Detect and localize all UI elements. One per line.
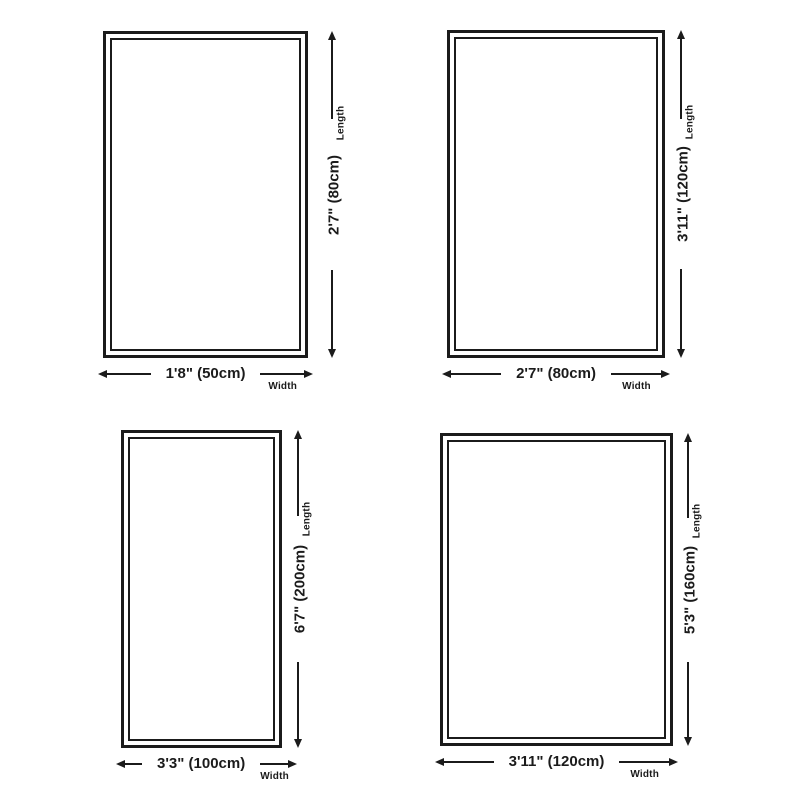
arrow-down-icon [680, 269, 682, 350]
length-dimension-value: 6'7" (200cm) [292, 545, 309, 633]
rug-diagram-120x160: Length 5'3" (160cm) 3'11" (120cm) Width [440, 433, 725, 793]
rug-size-chart: Length 2'7" (80cm) 1'8" (50cm) Width Len… [0, 0, 800, 800]
arrow-right-icon [260, 763, 289, 765]
width-dimension-line: 2'7" (80cm) Width [450, 362, 662, 392]
arrow-up-icon [297, 438, 299, 516]
rug-inner-outline [447, 440, 666, 739]
rug-outline [121, 430, 282, 748]
length-axis-label: Length [336, 105, 347, 140]
length-axis-label: Length [692, 503, 703, 538]
arrow-down-icon [687, 662, 689, 739]
arrow-left-icon [450, 373, 501, 375]
width-dimension-line: 3'3" (100cm) Width [124, 752, 279, 782]
length-axis-label: Length [302, 502, 313, 537]
length-dimension-value: 3'11" (120cm) [675, 146, 692, 242]
rug-outline [440, 433, 673, 746]
arrow-up-icon [680, 38, 682, 119]
rug-diagram-50x80: Length 2'7" (80cm) 1'8" (50cm) Width [103, 31, 368, 406]
rug-diagram-80x120: Length 3'11" (120cm) 2'7" (80cm) Width [447, 30, 717, 405]
arrow-left-icon [124, 763, 142, 765]
width-dimension-value: 1'8" (50cm) [151, 362, 261, 386]
width-dimension-value: 3'11" (120cm) [494, 750, 620, 774]
length-axis-label: Length [685, 105, 696, 140]
length-dimension-value: 2'7" (80cm) [326, 155, 343, 235]
width-dimension-line: 3'11" (120cm) Width [443, 750, 670, 780]
width-axis-label: Width [260, 771, 289, 782]
arrow-up-icon [331, 39, 333, 119]
width-axis-label: Width [630, 769, 659, 780]
rug-diagram-100x200: Length 6'7" (200cm) 3'3" (100cm) Width [121, 430, 336, 795]
width-dimension-line: 1'8" (50cm) Width [106, 362, 305, 392]
rug-outline [103, 31, 308, 358]
rug-inner-outline [110, 38, 301, 351]
arrow-down-icon [297, 662, 299, 740]
rug-inner-outline [128, 437, 275, 741]
arrow-left-icon [106, 373, 151, 375]
width-dimension-value: 3'3" (100cm) [142, 752, 260, 776]
width-dimension-value: 2'7" (80cm) [501, 362, 611, 386]
arrow-right-icon [260, 373, 305, 375]
arrow-down-icon [331, 270, 333, 350]
arrow-right-icon [611, 373, 662, 375]
arrow-left-icon [443, 761, 494, 763]
rug-inner-outline [454, 37, 658, 351]
rug-outline [447, 30, 665, 358]
arrow-right-icon [619, 761, 670, 763]
width-axis-label: Width [268, 381, 297, 392]
arrow-up-icon [687, 441, 689, 518]
width-axis-label: Width [622, 381, 651, 392]
length-dimension-value: 5'3" (160cm) [682, 545, 699, 633]
